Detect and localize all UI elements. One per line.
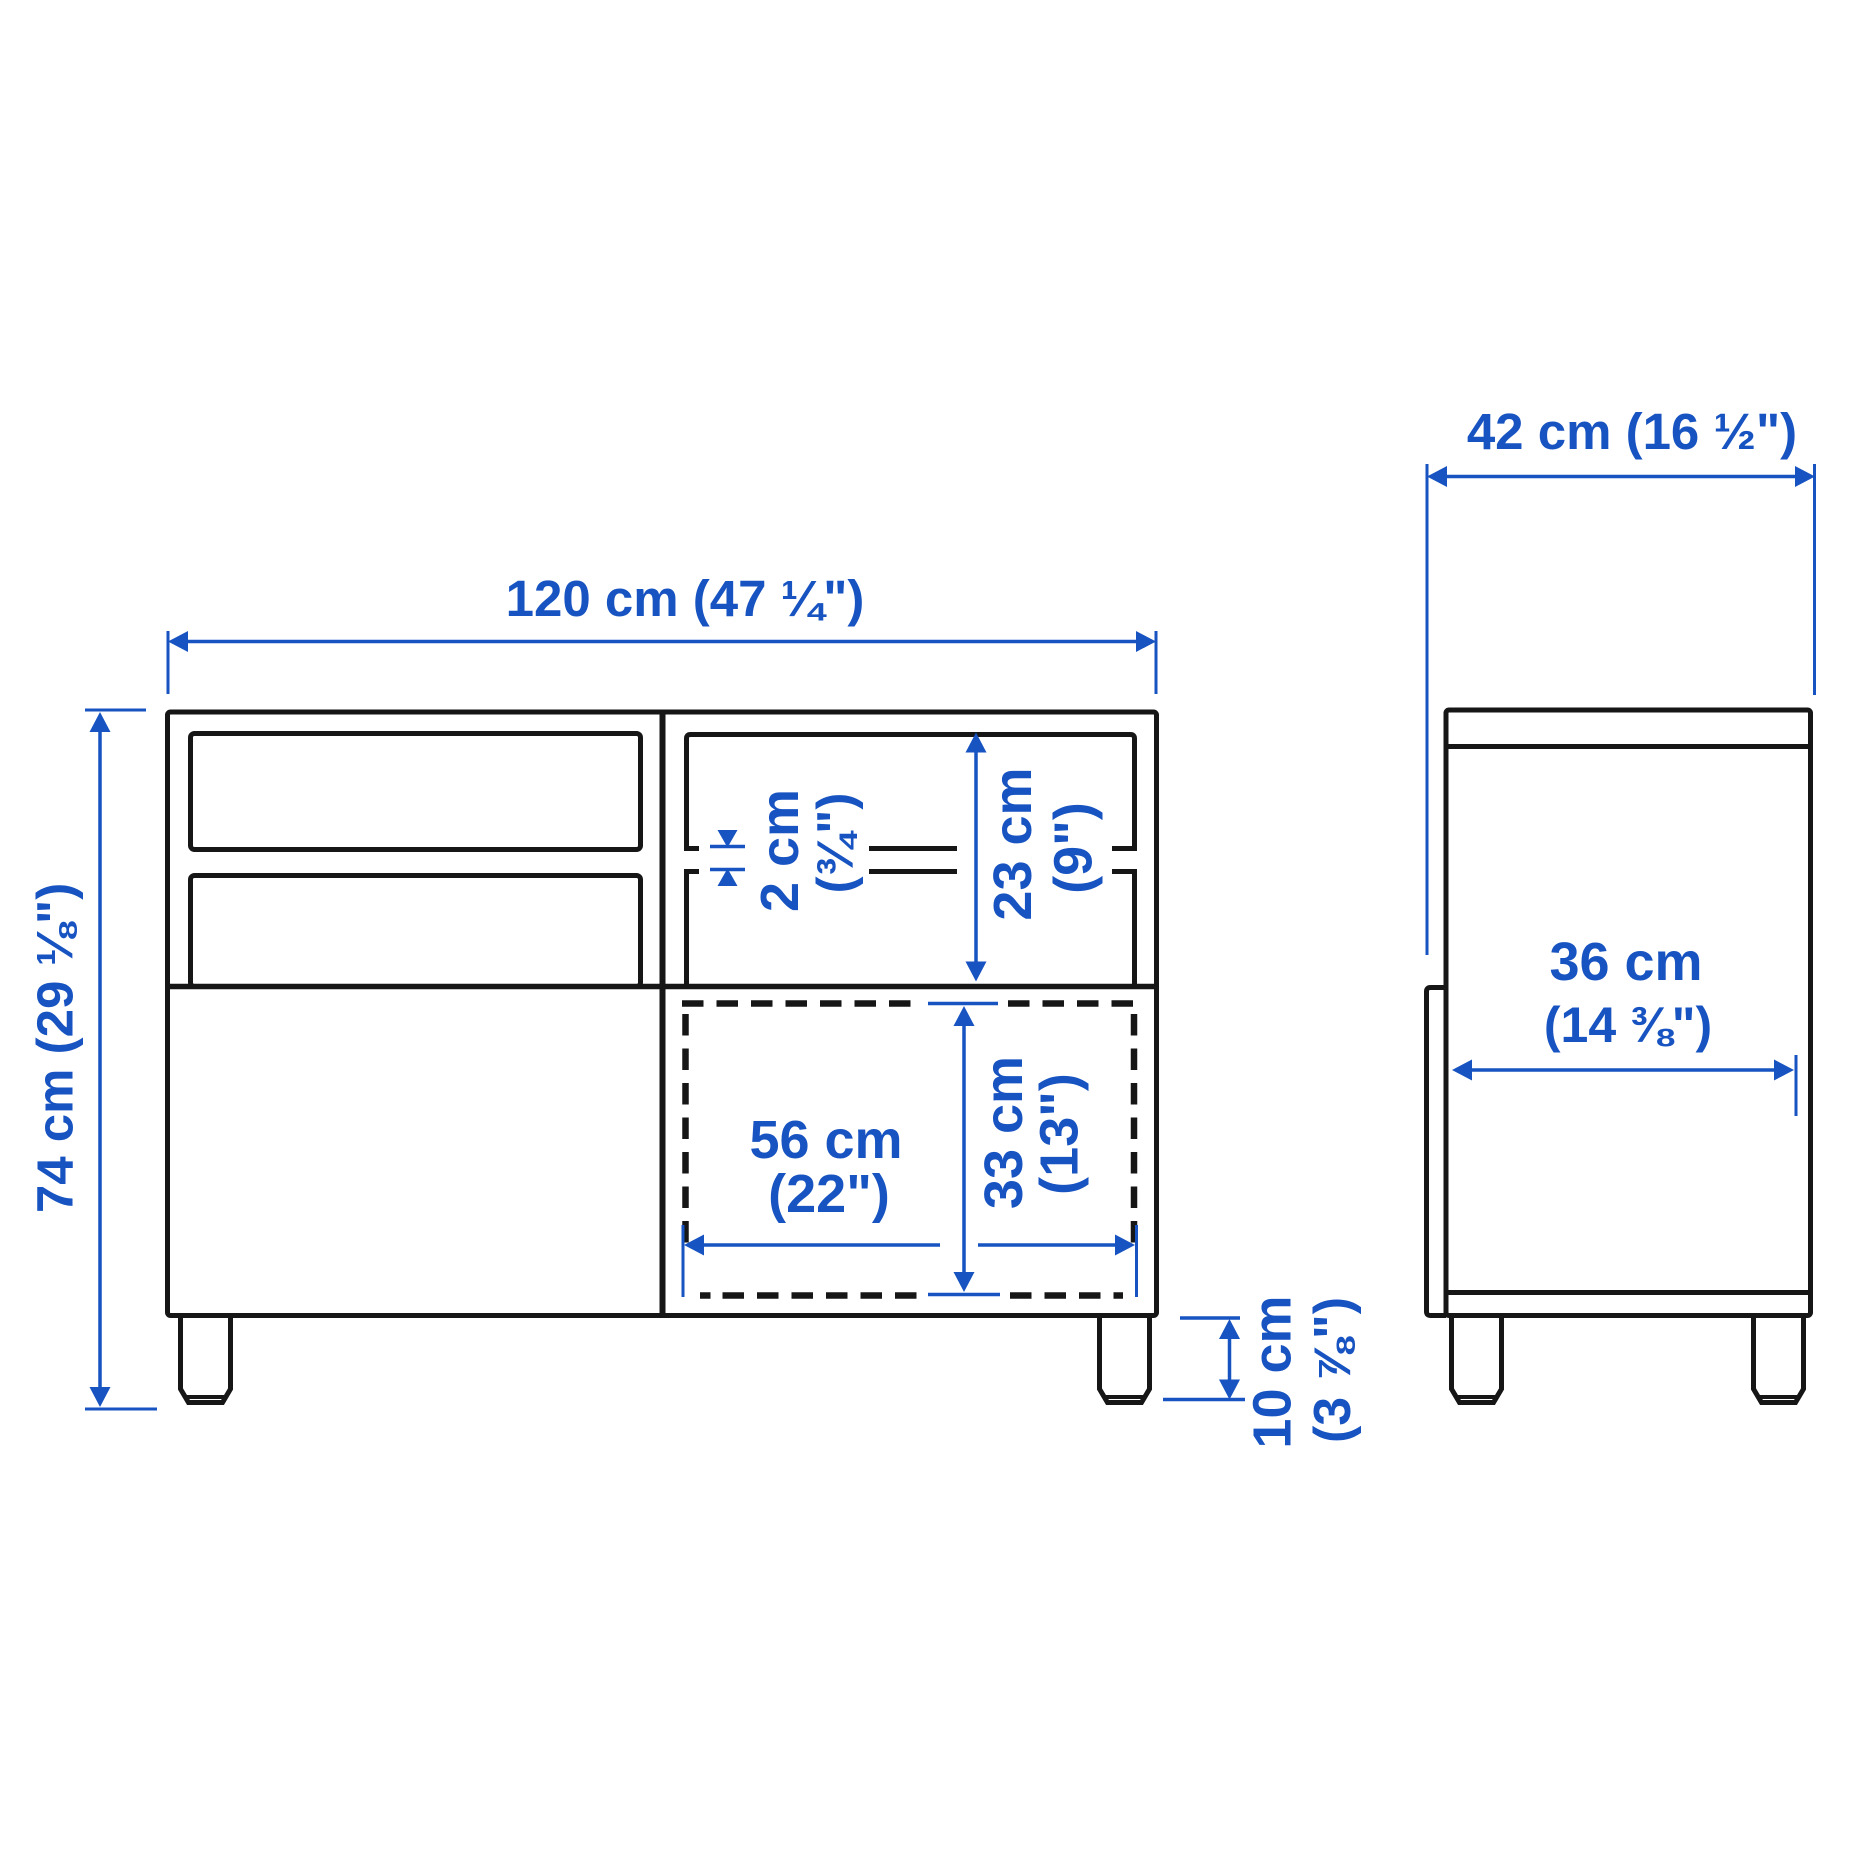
svg-text:56 cm: 56 cm <box>749 1110 902 1170</box>
svg-text:74 cm (29 ⅛"): 74 cm (29 ⅛") <box>27 883 84 1213</box>
svg-text:42 cm (16 ½"): 42 cm (16 ½") <box>1467 403 1797 460</box>
svg-text:(¾"): (¾") <box>807 793 864 894</box>
svg-text:2 cm: 2 cm <box>750 789 810 912</box>
svg-text:33 cm: 33 cm <box>974 1056 1034 1209</box>
svg-text:120 cm (47 ¼"): 120 cm (47 ¼") <box>506 570 865 627</box>
svg-text:36 cm: 36 cm <box>1549 932 1702 992</box>
svg-text:10 cm: 10 cm <box>1243 1295 1303 1448</box>
svg-text:23 cm: 23 cm <box>983 767 1043 920</box>
svg-text:(13"): (13") <box>1030 1073 1090 1195</box>
svg-text:(14 ⅜"): (14 ⅜") <box>1544 997 1712 1053</box>
svg-text:(9"): (9") <box>1044 802 1104 894</box>
svg-text:(3 ⅞"): (3 ⅞") <box>1304 1297 1362 1443</box>
svg-text:(22"): (22") <box>768 1164 890 1224</box>
